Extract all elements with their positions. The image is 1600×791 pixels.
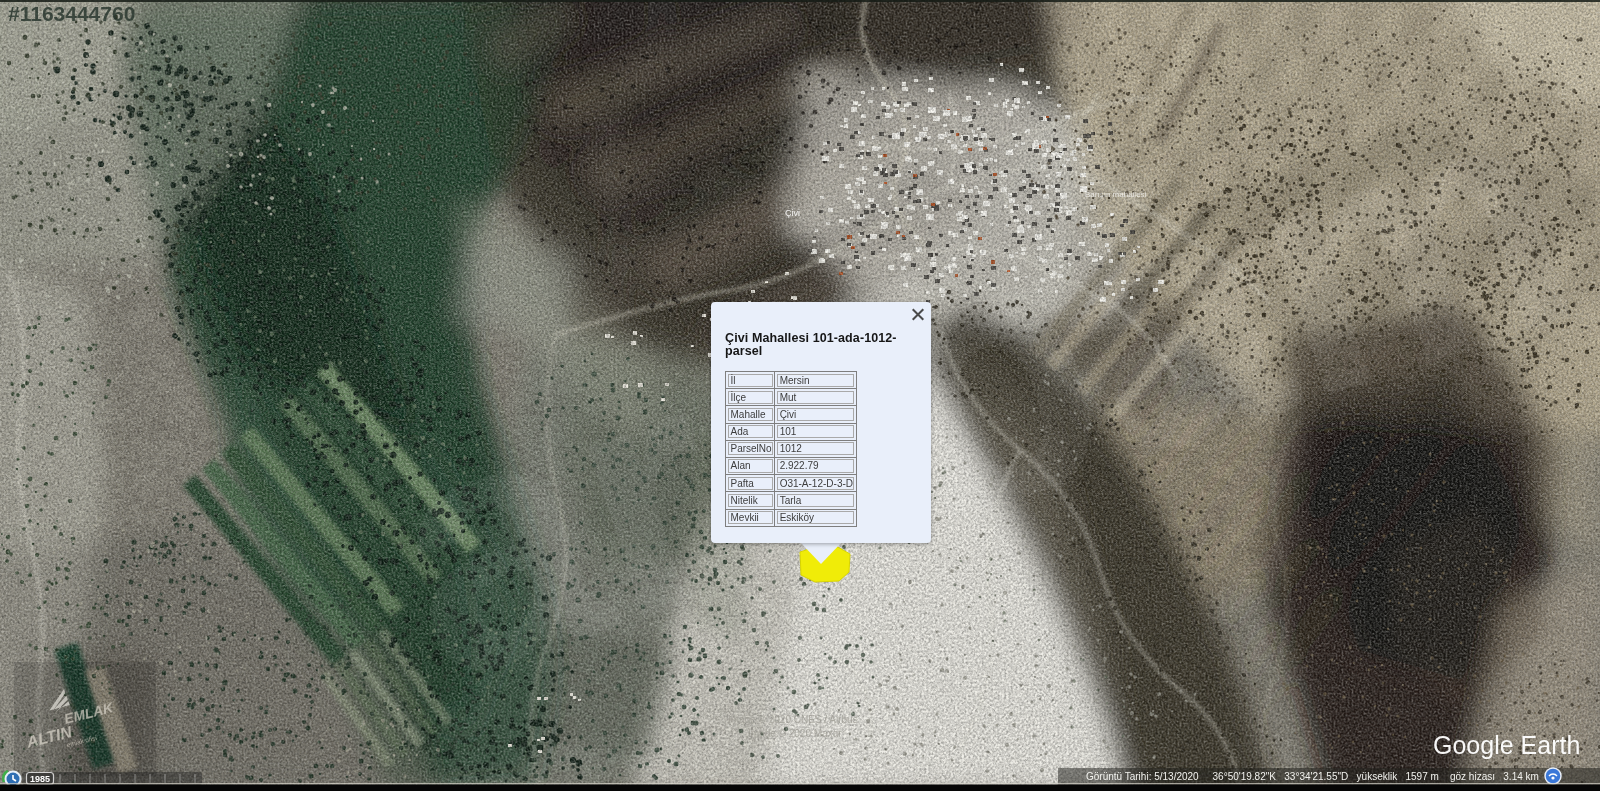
svg-text:Görüntü Tarihi: 5/13/2020: Görüntü Tarihi: 5/13/2020 36°50'19.82"K … bbox=[1086, 771, 1539, 782]
svg-text:Çivi: Çivi bbox=[785, 208, 800, 218]
svg-text:Google Earth: Google Earth bbox=[1433, 731, 1580, 759]
svg-text:#1163444760: #1163444760 bbox=[8, 2, 135, 25]
svg-text:Image © 2020 CNES / Airbus: Image © 2020 CNES / Airbus bbox=[728, 714, 858, 725]
svg-text:1985: 1985 bbox=[30, 774, 50, 784]
svg-text:Image © 2020 Maxar: Image © 2020 Maxar bbox=[748, 728, 842, 739]
svg-text:Barışın mahallesi: Barışın mahallesi bbox=[1085, 190, 1147, 199]
